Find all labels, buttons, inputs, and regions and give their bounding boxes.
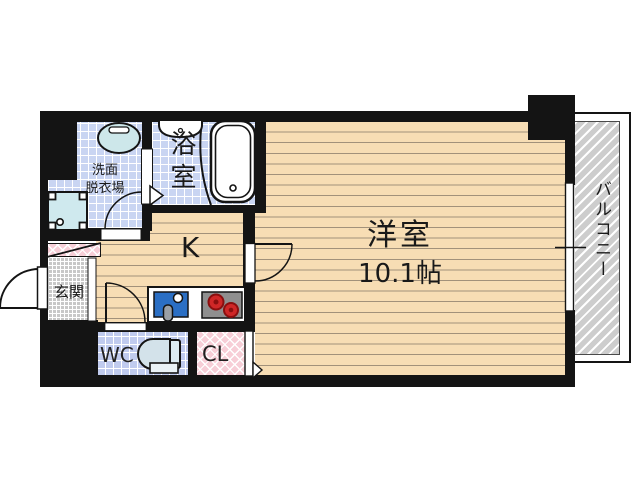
wc-door-opening <box>105 323 146 331</box>
bathtub-drain <box>230 185 236 191</box>
living-room-size: 10.1帖 <box>332 253 468 290</box>
living-door-swing <box>255 244 292 281</box>
entrance-label: 玄関 <box>48 281 90 302</box>
shoe-cabinet-diagonal <box>47 243 101 257</box>
washroom-label-bottom: 脱衣場 <box>71 177 139 196</box>
washroom-door-opening <box>101 229 141 240</box>
stove-burner-2-center <box>229 308 234 313</box>
living-door-leaf <box>245 244 255 284</box>
pan-drain <box>57 219 63 225</box>
balcony-label: バルコニー <box>589 180 614 280</box>
laundry-sink-ledge <box>109 127 129 133</box>
washroom-label-top: 洗面 <box>71 159 139 178</box>
toilet-base <box>150 363 178 373</box>
floor-plan: 洋室 10.1帖 K 浴室 洗面 脱衣場 玄関 WC CL バルコニー <box>0 0 640 480</box>
folding-bath-door <box>150 186 163 205</box>
kitchen-sink-drain <box>174 294 183 303</box>
closet-door-arrow <box>253 362 262 378</box>
bathroom-label: 浴室 <box>163 130 200 196</box>
fixtures-layer <box>0 0 640 480</box>
kitchen-label: K <box>175 231 205 264</box>
entrance-door-swing <box>0 269 39 308</box>
stove-burner-1-center <box>214 300 219 305</box>
pan-corner-4 <box>80 223 87 230</box>
entrance-door-leaf <box>38 267 48 309</box>
toilet-label: WC <box>100 343 134 367</box>
wc-door-swing <box>106 283 145 322</box>
kitchen-faucet <box>164 305 173 321</box>
pan-corner-3 <box>49 223 56 230</box>
closet-door <box>245 331 253 376</box>
bath-partition <box>200 120 211 205</box>
pan-corner-1 <box>49 193 56 200</box>
washroom-door-swing <box>105 192 142 229</box>
closet-label: CL <box>202 342 228 366</box>
living-room-label: 洋室 <box>337 210 463 254</box>
